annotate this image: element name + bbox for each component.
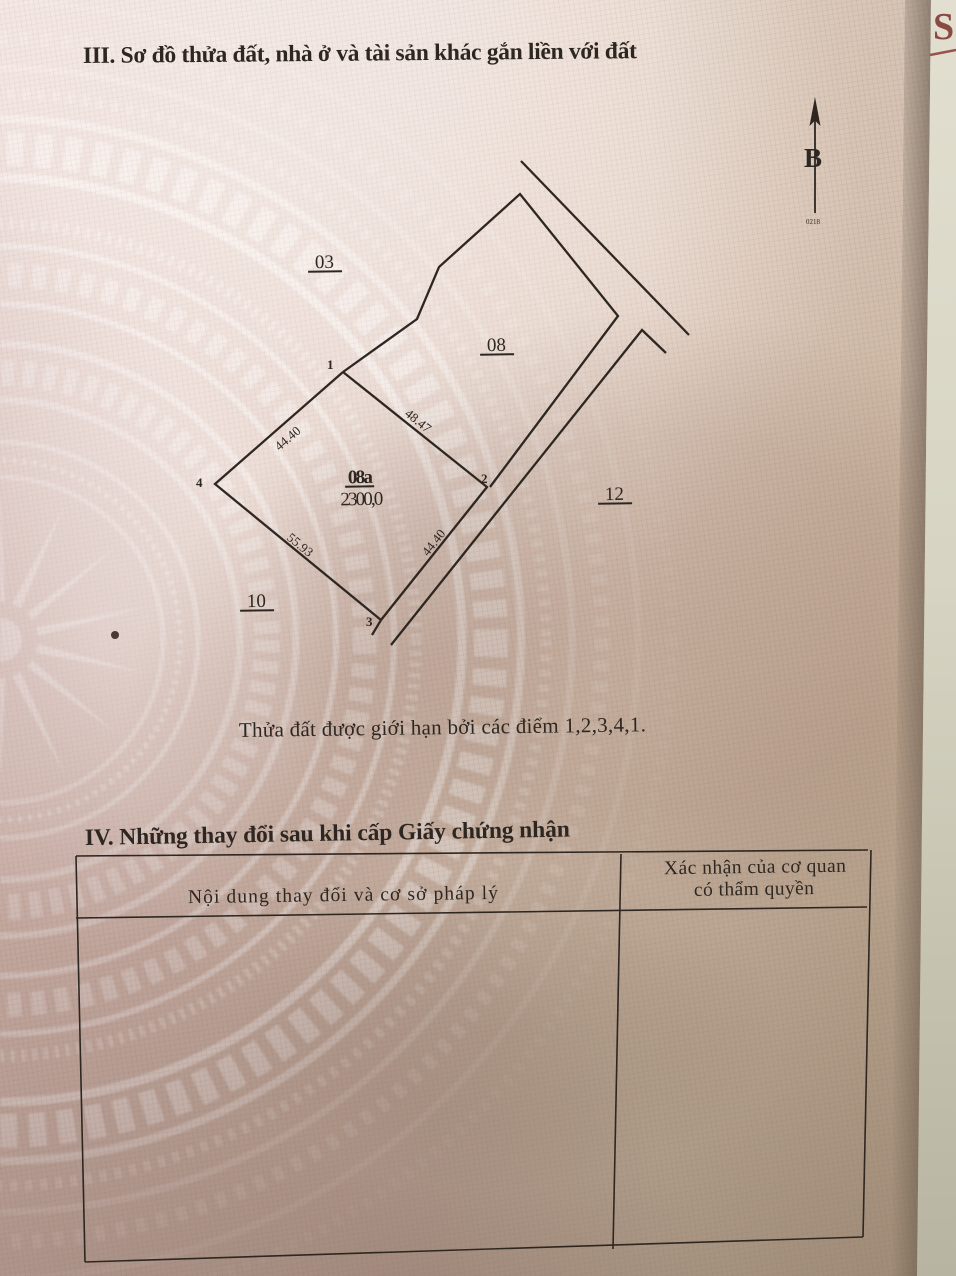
- svg-text:S: S: [933, 6, 954, 48]
